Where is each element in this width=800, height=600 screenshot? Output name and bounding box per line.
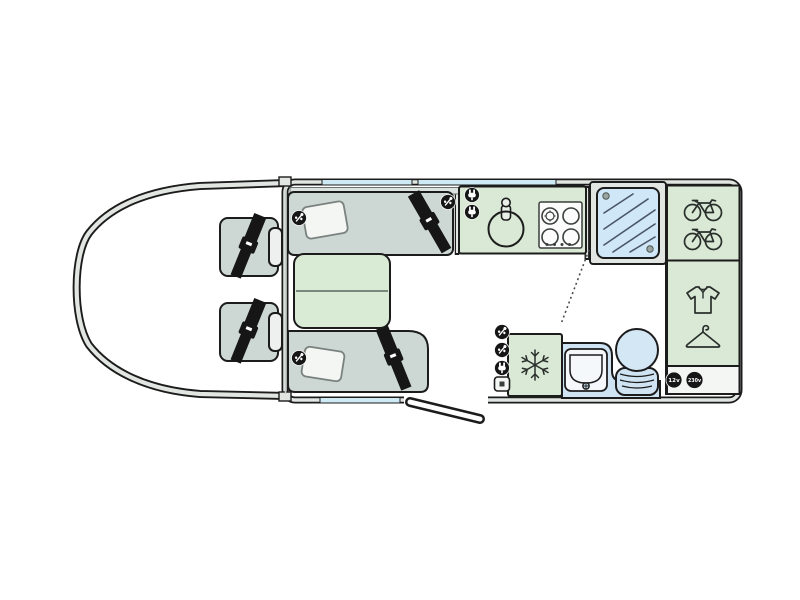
cab-seat-armrest [269, 313, 282, 351]
kitchen [459, 187, 586, 254]
pillow-icon [302, 201, 349, 240]
tap-knob [502, 198, 510, 206]
window-top-lounge [322, 180, 412, 186]
socket-230v-icon: 230v [686, 372, 703, 389]
window-bottom-lounge [320, 398, 400, 404]
socket-230v-label: 230v [688, 378, 702, 384]
shower-head [603, 193, 609, 199]
floorplan-canvas: 12v 230v [0, 0, 800, 600]
motorhome-floorplan-page: 12v 230v [0, 0, 800, 600]
cab-seat-passenger [220, 297, 282, 365]
toilet-icon [616, 329, 658, 395]
shower-drain [647, 246, 653, 252]
usb-socket-icon [495, 325, 510, 340]
cab-seat-driver [220, 212, 282, 280]
tv-point-icon [495, 377, 510, 391]
usb-socket-icon [495, 343, 510, 358]
entry-door [404, 395, 488, 419]
shower [590, 182, 666, 264]
mains-socket-icon [465, 205, 480, 220]
hob-icon [539, 202, 582, 248]
window-top-kitchen [418, 180, 556, 186]
socket-12v-icon: 12v [666, 372, 682, 388]
mains-socket-icon [495, 361, 510, 376]
basin-icon [565, 349, 607, 391]
usb-socket-icon [441, 195, 456, 210]
usb-socket-icon [292, 211, 307, 226]
usb-socket-icon [292, 351, 307, 366]
cab-seat-armrest [269, 228, 282, 266]
mains-socket-icon [465, 188, 480, 203]
pillow-icon [301, 346, 345, 382]
socket-12v-label: 12v [668, 378, 680, 384]
bike-storage [667, 186, 740, 261]
cab-body-joint-top [279, 177, 291, 186]
rear-storage: 12v 230v [666, 186, 740, 395]
